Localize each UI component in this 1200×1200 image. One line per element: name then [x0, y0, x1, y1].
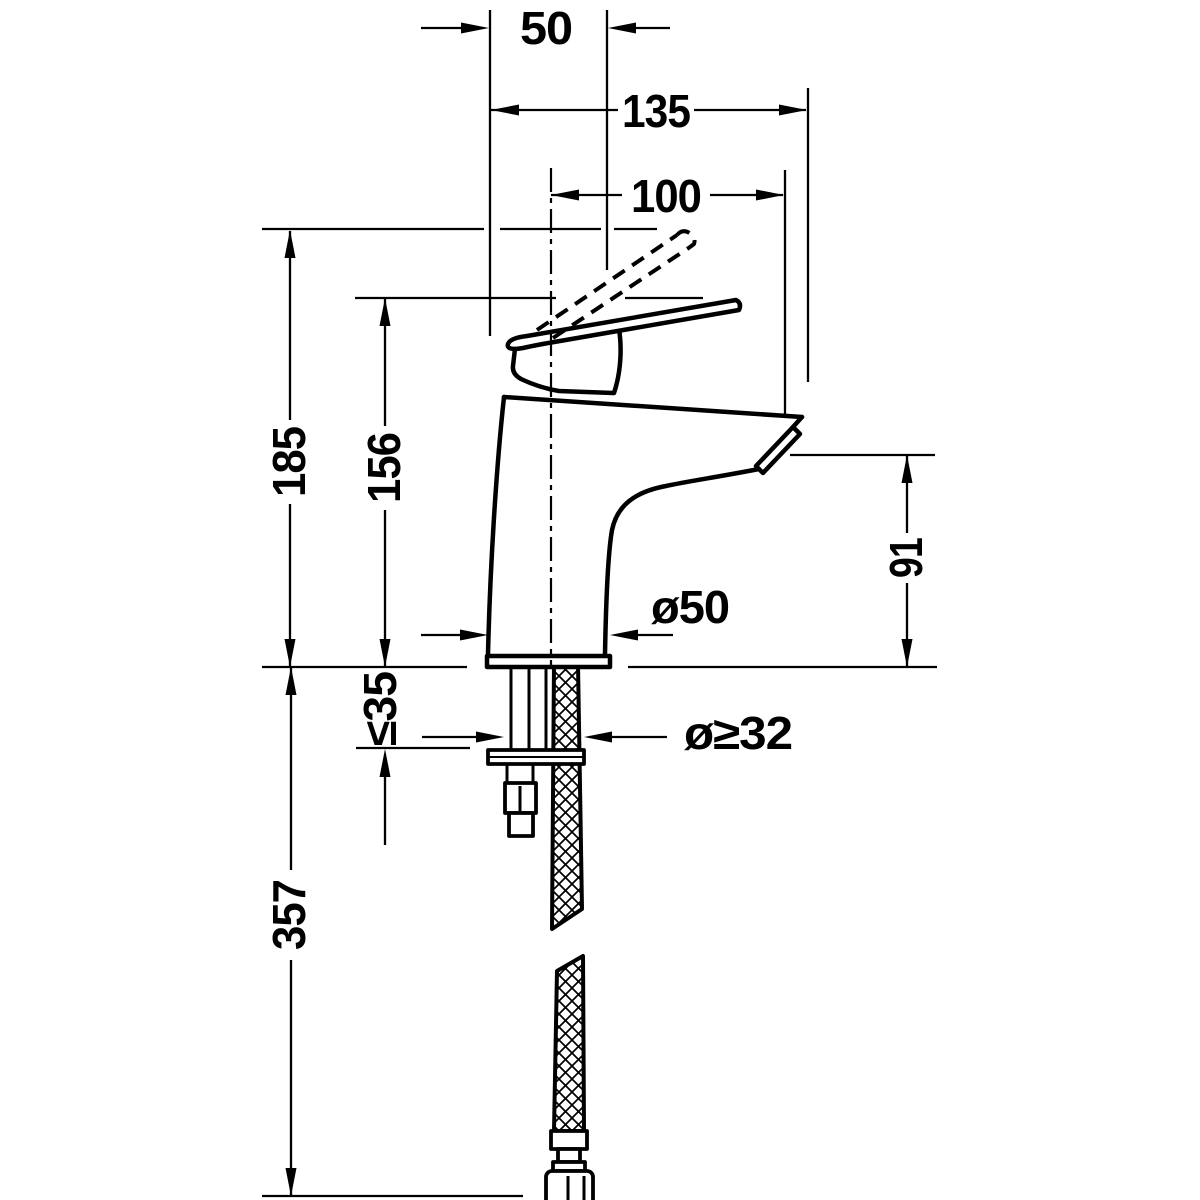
dim-label-357: 357 — [263, 880, 315, 950]
arrowhead — [608, 23, 636, 34]
arrowhead — [285, 639, 296, 667]
dimension-lines — [285, 23, 913, 1197]
dim-label-135: 135 — [622, 85, 690, 137]
dim-label-50: 50 — [520, 2, 572, 54]
hose-lower-segment — [554, 956, 584, 1131]
spout-top-edge — [504, 397, 802, 417]
dim-label-o32: ø≥32 — [684, 707, 792, 759]
dim-label-35: ≤35 — [354, 672, 406, 746]
arrowhead — [380, 639, 391, 667]
supply-hose — [546, 664, 593, 1200]
technical-drawing-page: 50 135 100 185 156 91 ø50 ≤35 ø≥32 357 — [0, 0, 1200, 1200]
arrowhead — [286, 1168, 297, 1196]
arrowhead — [285, 230, 296, 258]
hose-ferrule — [551, 1131, 587, 1149]
arrowhead — [610, 630, 638, 641]
dim-label-91: 91 — [880, 538, 932, 578]
arrowhead — [380, 298, 391, 326]
hose-upper-segment — [552, 664, 582, 929]
arrowhead — [460, 630, 488, 641]
threaded-shank — [511, 668, 546, 749]
arrowhead — [286, 667, 297, 695]
dimension-labels: 50 135 100 185 156 91 ø50 ≤35 ø≥32 357 — [263, 2, 932, 950]
arrowhead — [584, 732, 612, 743]
arrowhead — [551, 190, 579, 201]
arrowhead — [779, 105, 807, 116]
arrowhead — [902, 639, 913, 667]
handle-neck-edge — [614, 329, 621, 393]
base-plate — [487, 656, 610, 667]
arrowhead — [461, 23, 489, 34]
dim-label-185: 185 — [263, 427, 315, 497]
hose-collar — [558, 1149, 580, 1162]
aerator — [756, 427, 800, 473]
arrowhead — [380, 749, 391, 777]
mounting-stud — [507, 764, 533, 783]
faucet-body — [487, 231, 802, 667]
dim-label-100: 100 — [631, 170, 701, 222]
faucet-technical-drawing: 50 135 100 185 156 91 ø50 ≤35 ø≥32 357 — [0, 0, 1200, 1200]
body-left-edge — [488, 397, 504, 654]
stud-end — [509, 813, 533, 836]
arrowhead — [756, 190, 784, 201]
arrowhead — [902, 455, 913, 483]
arrowhead — [476, 732, 504, 743]
arrowhead — [491, 105, 519, 116]
dim-label-o50: ø50 — [651, 581, 729, 633]
dim-label-156: 156 — [358, 433, 410, 503]
extension-lines — [262, 10, 937, 1196]
